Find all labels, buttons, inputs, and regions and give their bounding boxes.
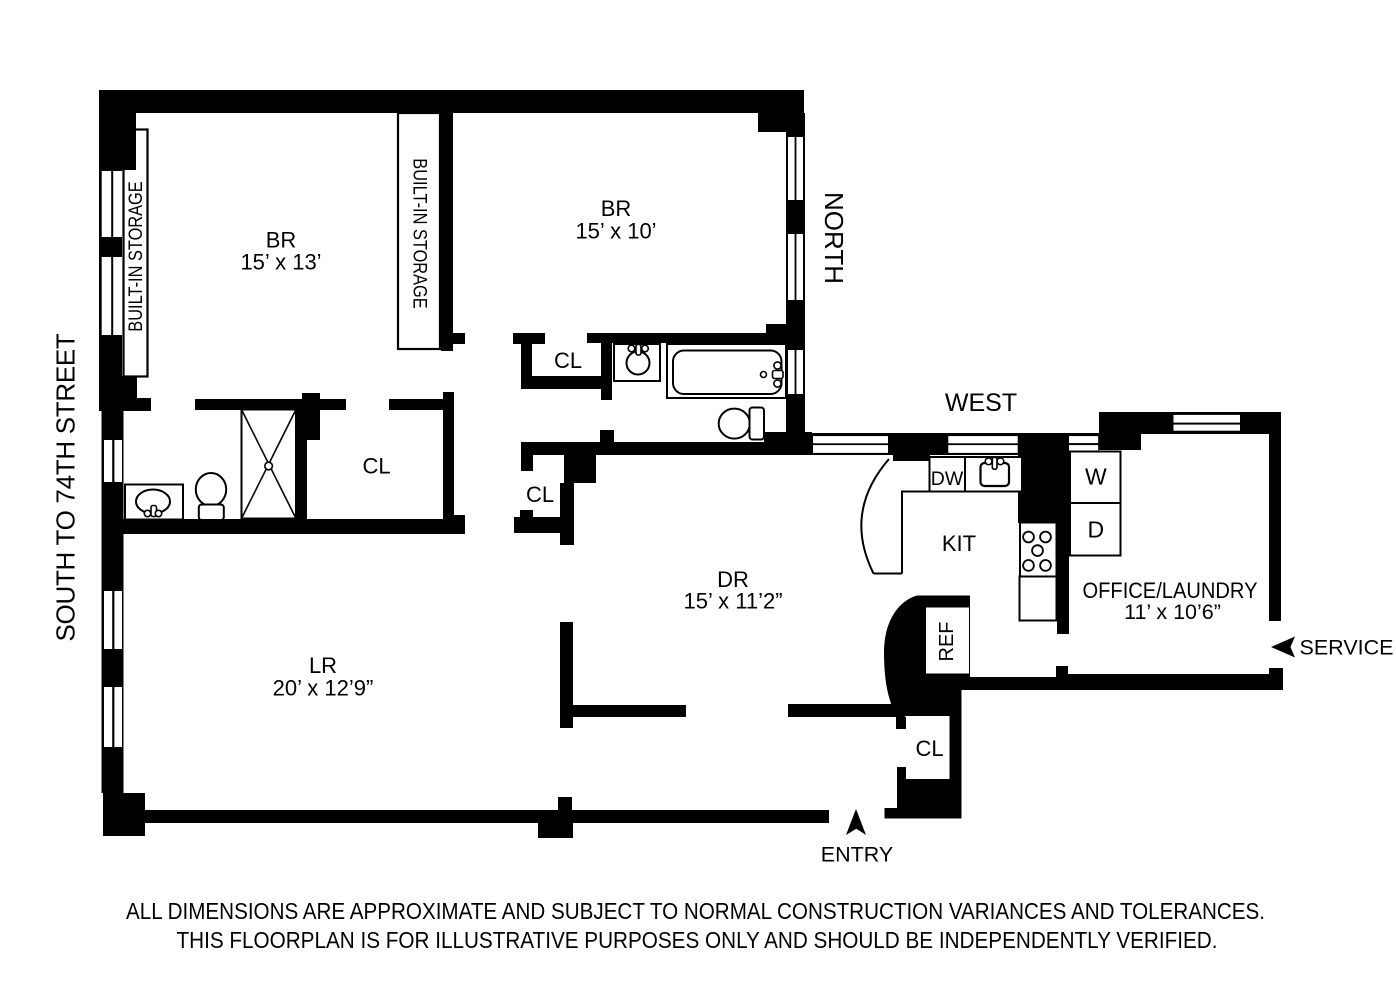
- svg-text:THIS FLOORPLAN IS FOR ILLUSTRA: THIS FLOORPLAN IS FOR ILLUSTRATIVE PURPO…: [177, 927, 1218, 953]
- svg-text:CL: CL: [915, 736, 943, 761]
- svg-text:LR: LR: [309, 653, 337, 678]
- svg-text:DW: DW: [931, 468, 964, 490]
- svg-text:BUILT-IN STORAGE: BUILT-IN STORAGE: [125, 181, 147, 331]
- svg-text:15’ x 10’: 15’ x 10’: [575, 219, 656, 244]
- svg-text:KIT: KIT: [942, 531, 976, 556]
- svg-text:ALL DIMENSIONS ARE APPROXIMATE: ALL DIMENSIONS ARE APPROXIMATE AND SUBJE…: [126, 898, 1265, 924]
- svg-text:15’ x 13’: 15’ x 13’: [240, 250, 321, 275]
- svg-text:11’ x 10’6”: 11’ x 10’6”: [1124, 600, 1221, 624]
- svg-text:W: W: [1085, 464, 1107, 490]
- svg-text:NORTH: NORTH: [819, 192, 849, 284]
- svg-text:BR: BR: [601, 196, 632, 221]
- svg-text:CL: CL: [554, 348, 582, 373]
- svg-text:REF: REF: [936, 622, 958, 662]
- svg-text:WEST: WEST: [945, 389, 1017, 417]
- svg-text:BUILT-IN STORAGE: BUILT-IN STORAGE: [409, 158, 431, 308]
- svg-text:SOUTH TO 74TH STREET: SOUTH TO 74TH STREET: [51, 333, 81, 641]
- svg-text:ENTRY: ENTRY: [821, 843, 893, 867]
- svg-text:15’ x 11’2”: 15’ x 11’2”: [683, 589, 782, 614]
- svg-text:SERVICE: SERVICE: [1300, 636, 1394, 660]
- svg-text:CL: CL: [526, 482, 554, 507]
- svg-text:CL: CL: [362, 454, 390, 479]
- svg-text:20’ x 12’9”: 20’ x 12’9”: [273, 676, 374, 701]
- svg-text:D: D: [1087, 517, 1104, 543]
